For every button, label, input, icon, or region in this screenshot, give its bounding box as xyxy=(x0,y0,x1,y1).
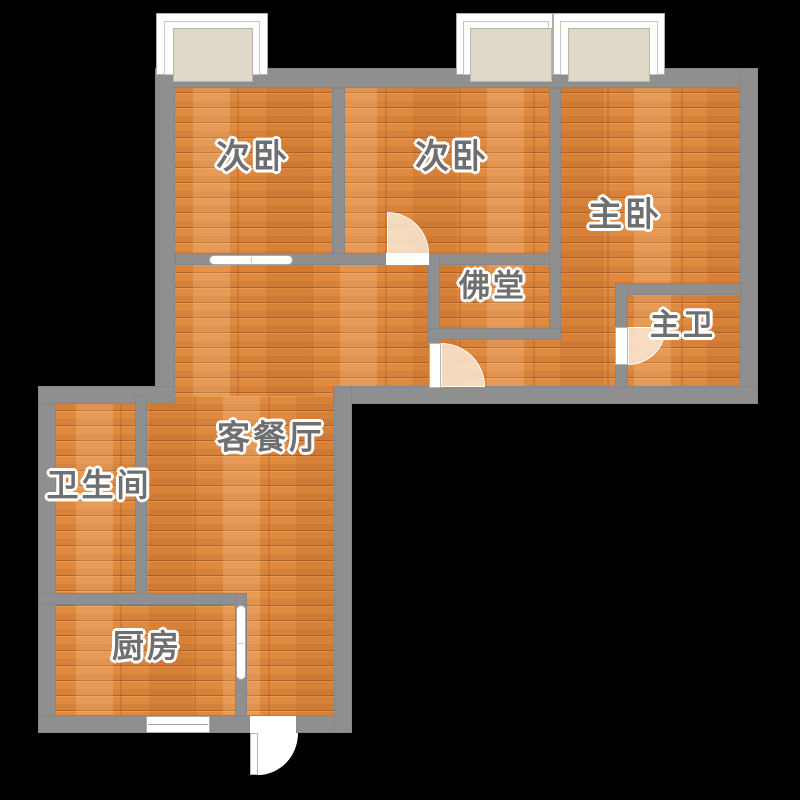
room-label-buddhist-hall: 佛堂 xyxy=(459,271,527,302)
labels-layer: 次卧次卧主卧佛堂主卫客餐厅卫生间厨房 xyxy=(0,0,800,800)
room-label-kitchen: 厨房 xyxy=(112,630,182,662)
room-label-living-dining-room: 客餐厅 xyxy=(217,421,325,454)
room-label-master-bathroom: 主卫 xyxy=(650,311,716,341)
room-label-bedroom-second-left: 次卧 xyxy=(216,140,290,174)
room-label-bathroom: 卫生间 xyxy=(46,469,151,501)
room-label-master-bedroom: 主卧 xyxy=(588,198,662,232)
room-label-bedroom-second-mid: 次卧 xyxy=(415,140,489,174)
floor-plan: 次卧次卧主卧佛堂主卫客餐厅卫生间厨房 xyxy=(0,0,800,800)
